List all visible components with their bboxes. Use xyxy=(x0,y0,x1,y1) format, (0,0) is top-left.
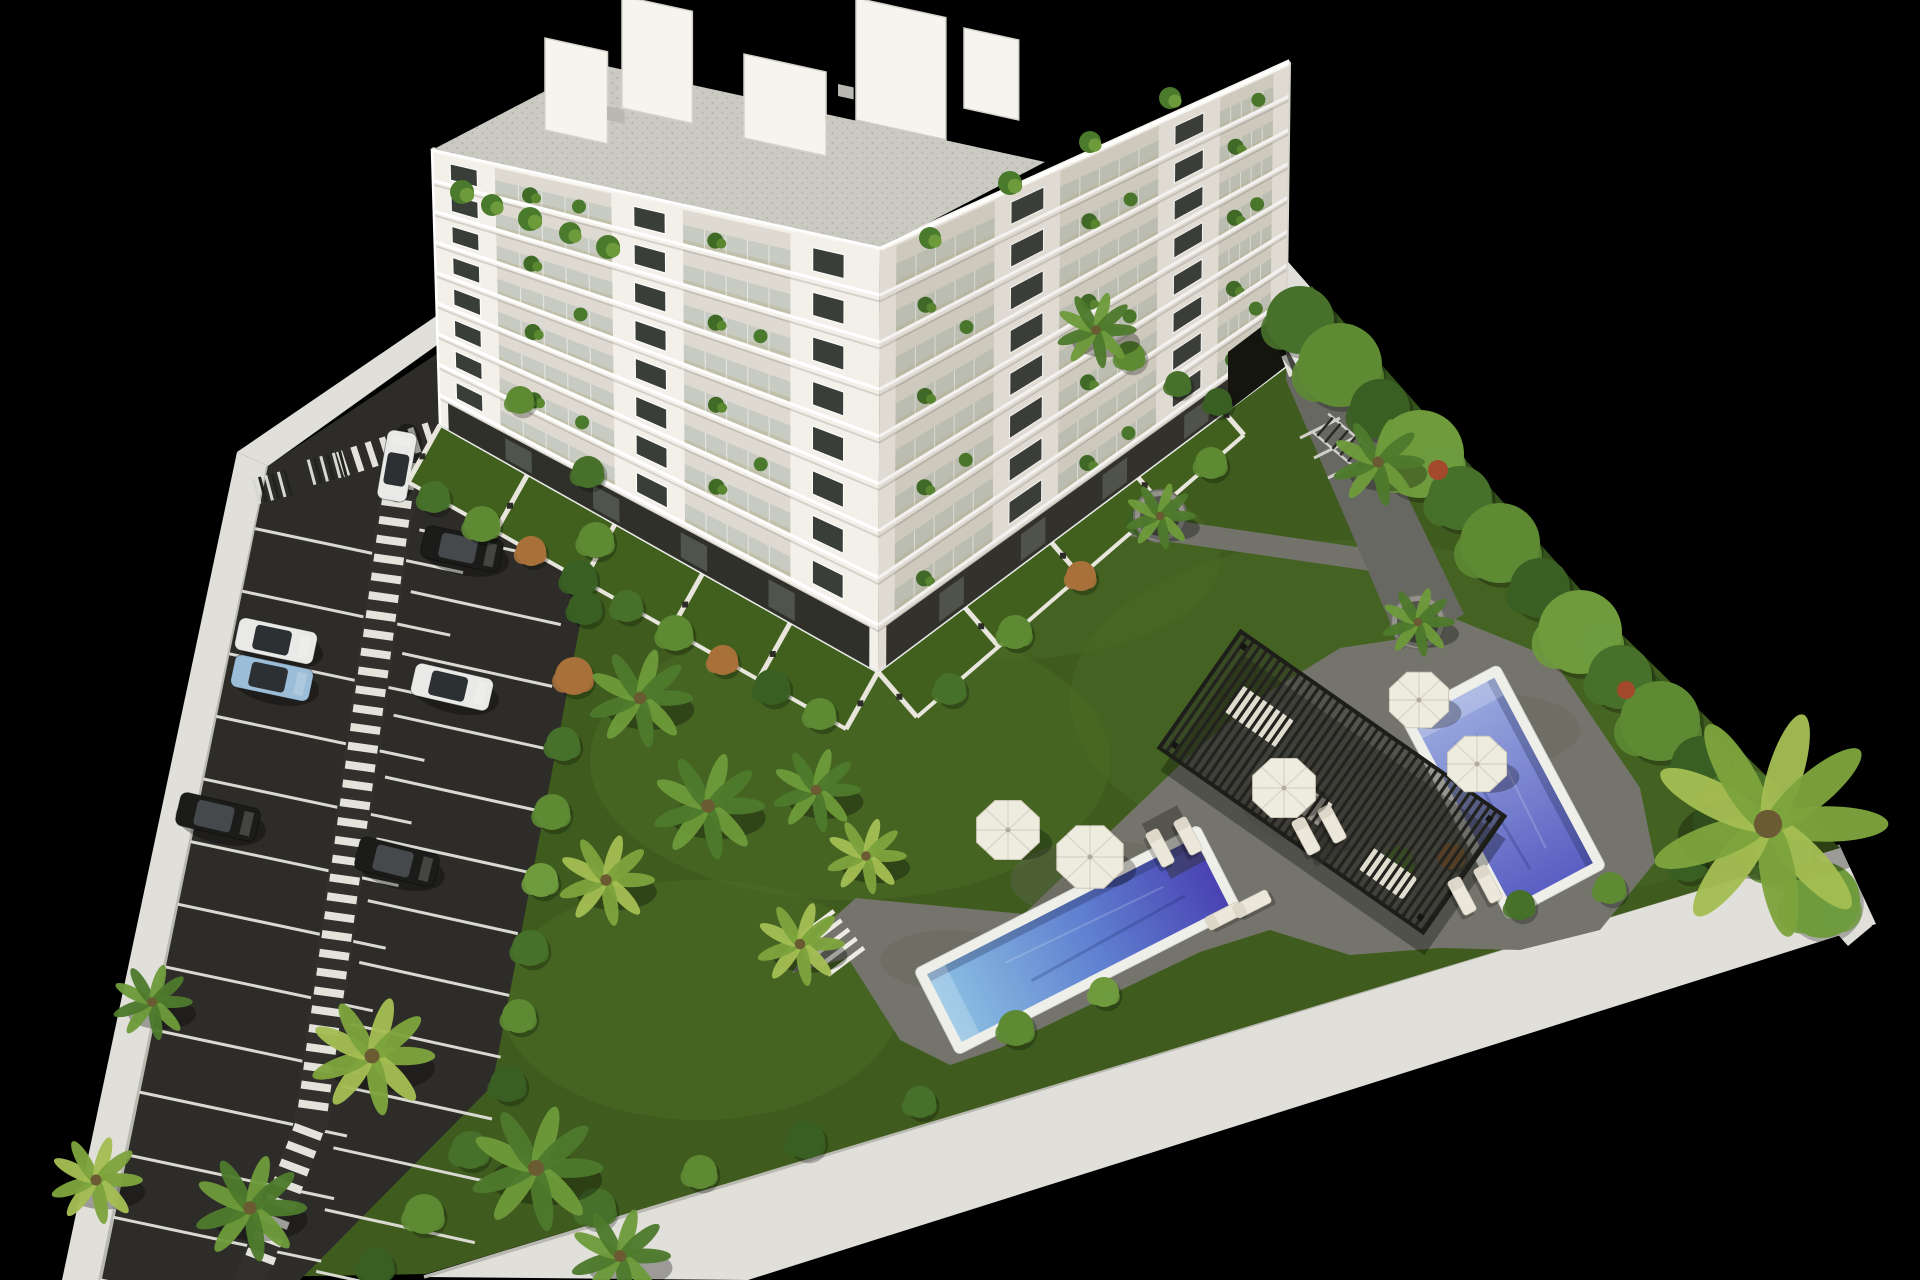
rooftop-structure xyxy=(545,38,608,144)
site-plan-rendering xyxy=(0,0,1920,1280)
architectural-rendering-stage xyxy=(0,0,1920,1280)
rooftop-structure xyxy=(622,0,692,123)
rooftop-structure xyxy=(964,28,1019,120)
rooftop-structure xyxy=(856,0,946,140)
rooftop-structure xyxy=(744,54,826,156)
